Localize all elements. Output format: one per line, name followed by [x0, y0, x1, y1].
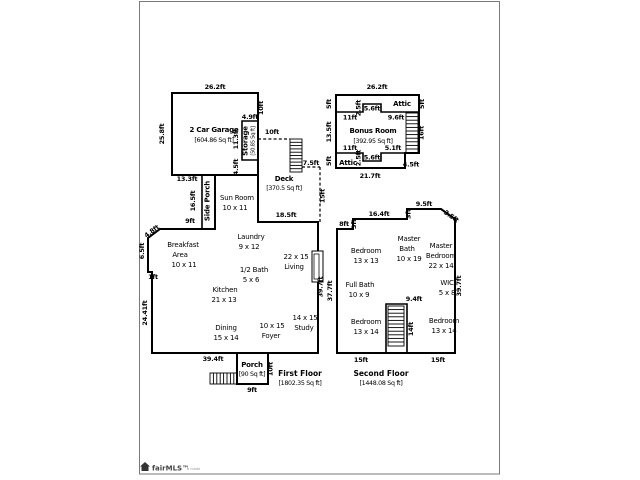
room-porch: Porch — [241, 361, 263, 369]
dim-left-wall: 24.41ft — [141, 300, 149, 325]
room-storage: Storage — [242, 126, 250, 156]
dims-master-bath: 10 x 19 — [396, 255, 421, 263]
room-foyer: Foyer — [262, 332, 281, 340]
dim-side-porch: 16.5ft — [189, 191, 197, 212]
room-living: Living — [284, 263, 304, 271]
dim-bonus-left-top: 5ft — [325, 99, 333, 109]
dim-bonus-step: 4.5ft — [403, 161, 420, 169]
dim-2f-angle: 3.5ft — [442, 208, 460, 224]
room-attic-bottom: Attic — [339, 159, 357, 167]
dims-kitchen: 21 x 13 — [211, 296, 236, 304]
area-garage: [604.86 Sq ft] — [194, 137, 233, 144]
second-floor-stairs — [388, 306, 404, 346]
dim-deck-top: 10ft — [265, 128, 279, 136]
dim-attic-notch-bottom-w: 5.6ft — [364, 154, 381, 162]
title-first-floor: First Floor — [278, 369, 322, 378]
room-bedroom-br: Bedroom — [429, 317, 460, 325]
room-breakfast-1: Breakfast — [167, 241, 199, 249]
page-frame — [140, 2, 500, 475]
dims-bedroom-bl: 13 x 14 — [353, 328, 379, 336]
watermark: fairMLS™ b mode — [140, 462, 200, 473]
dim-deck-right: 15ft — [319, 189, 327, 203]
dim-right-wall: 39.7ft — [317, 277, 325, 298]
room-study: Study — [294, 324, 313, 332]
bonus-room-labels: 26.2ft5ft13.5ft5ft2.5ft5.6ftAttic5ft11ft… — [325, 83, 426, 180]
watermark-suffix: b mode — [187, 467, 200, 471]
room-deck: Deck — [275, 175, 294, 183]
dim-bonus-top: 26.2ft — [367, 83, 388, 91]
deck-edge-right — [302, 167, 320, 222]
dim-breakfast-left: 6.5ft — [138, 243, 146, 260]
area-deck: [370.5 Sq ft] — [266, 185, 302, 192]
watermark-brand: fairMLS™ — [152, 465, 189, 473]
dim-bonus-right-top: 5ft — [418, 99, 426, 109]
dim-bonus-left-bottom: 5ft — [325, 156, 333, 166]
room-master-bath-2: Bath — [399, 245, 414, 253]
room-attic-top: Attic — [393, 100, 411, 108]
dim-storage-top: 4.9ft — [242, 113, 259, 121]
dims-foyer: 10 x 15 — [259, 322, 284, 330]
area-porch: [90 Sq ft] — [239, 371, 266, 378]
room-garage: 2 Car Garage — [189, 126, 239, 134]
room-kitchen: Kitchen — [213, 286, 238, 294]
dim-bottom-wall: 39.4ft — [203, 355, 224, 363]
room-laundry: Laundry — [237, 233, 264, 241]
dim-2f-right: 39.7ft — [455, 276, 463, 297]
dims-living: 22 x 15 — [283, 253, 308, 261]
dim-deck-stairs: 7.5ft — [303, 159, 320, 167]
dims-master-bed: 22 x 14 — [428, 262, 454, 270]
dim-2f-left: 37.7ft — [326, 281, 334, 302]
room-half-bath: 1/2 Bath — [240, 266, 268, 274]
dims-full-bath: 10 x 9 — [349, 291, 370, 299]
dim-breakfast-top: 9ft — [185, 217, 195, 225]
dim-2f-bottom-left: 15ft — [354, 356, 368, 364]
dims-wic: 5 x 8 — [439, 289, 456, 297]
floor-plan-canvas: 26.2ft25.8ft10ft4.9ftStorage[50.85 Sq ft… — [0, 0, 640, 480]
dim-bonus-left-mid: 13.5ft — [325, 122, 333, 143]
dim-garage-top: 26.2ft — [205, 83, 226, 91]
floor-plan-page: 26.2ft25.8ft10ft4.9ftStorage[50.85 Sq ft… — [0, 0, 640, 480]
room-master-bath-1: Master — [398, 235, 421, 243]
dims-laundry: 9 x 12 — [239, 243, 260, 251]
deck-stairs — [290, 139, 302, 172]
area-first-floor: [1802.35 Sq ft] — [278, 380, 321, 387]
first-floor-labels: 26.2ft25.8ft10ft4.9ftStorage[50.85 Sq ft… — [138, 83, 327, 394]
room-side-porch: Side Porch — [204, 181, 212, 221]
dim-stairwell-right: 14ft — [407, 322, 415, 336]
dim-living-top: 18.5ft — [276, 211, 297, 219]
dim-garage-bottom: 13.3ft — [177, 175, 198, 183]
dim-2f-top-3: 9.5ft — [416, 200, 433, 208]
dim-attic-top-right: 9.6ft — [388, 114, 405, 122]
dim-bonus-bottom: 21.7ft — [360, 172, 381, 180]
dim-breakfast-angle: 4.8ft — [143, 223, 161, 239]
room-wic: WIC — [440, 279, 454, 287]
dims-study: 14 x 15 — [292, 314, 317, 322]
dims-dining: 15 x 14 — [213, 334, 239, 342]
dim-bonus-stairs: 16ft — [418, 126, 426, 140]
dim-porch-bottom: 9ft — [247, 386, 257, 394]
house-icon — [140, 462, 150, 471]
dim-attic-bottom-right: 5.1ft — [385, 144, 402, 152]
room-bonus: Bonus Room — [349, 127, 396, 135]
dims-breakfast: 10 x 11 — [171, 261, 196, 269]
dim-2f-top-1: 8ft — [339, 220, 349, 228]
dim-left-jog: 1ft — [148, 273, 158, 281]
dim-2f-step-2: 3ft — [405, 209, 413, 219]
dim-stairwell-top: 9.4ft — [406, 295, 423, 303]
room-bedroom-bl: Bedroom — [351, 318, 382, 326]
dim-garage-right-lower: 4.5ft — [232, 159, 240, 176]
dims-half-bath: 5 x 6 — [243, 276, 260, 284]
dim-2f-step-1: 3ft — [350, 219, 358, 229]
room-full-bath: Full Bath — [346, 281, 375, 289]
room-sun-room: Sun Room — [220, 194, 254, 202]
room-master-bed-1: Master — [430, 242, 453, 250]
bonus-stairs — [406, 113, 418, 153]
dims-sun-room: 10 x 11 — [222, 204, 247, 212]
room-bedroom-tl: Bedroom — [351, 247, 382, 255]
dim-2f-bottom-right: 15ft — [431, 356, 445, 364]
porch-stairs — [210, 373, 237, 384]
title-second-floor: Second Floor — [353, 369, 408, 378]
dims-bedroom-br: 13 x 14 — [431, 327, 457, 335]
dim-attic-top-left: 11ft — [343, 114, 357, 122]
dim-porch-right: 10ft — [267, 362, 275, 376]
room-breakfast-2: Area — [172, 251, 187, 259]
dim-attic-notch-top-w: 5.6ft — [364, 105, 381, 113]
dim-2f-top-2: 16.4ft — [369, 210, 390, 218]
room-master-bed-2: Bedroom — [426, 252, 457, 260]
area-second-floor: [1448.08 Sq ft] — [359, 380, 402, 387]
room-dining: Dining — [215, 324, 236, 332]
area-storage: [50.85 Sq ft] — [251, 126, 257, 156]
dim-garage-left: 25.8ft — [158, 124, 166, 145]
dims-bedroom-tl: 13 x 13 — [353, 257, 378, 265]
